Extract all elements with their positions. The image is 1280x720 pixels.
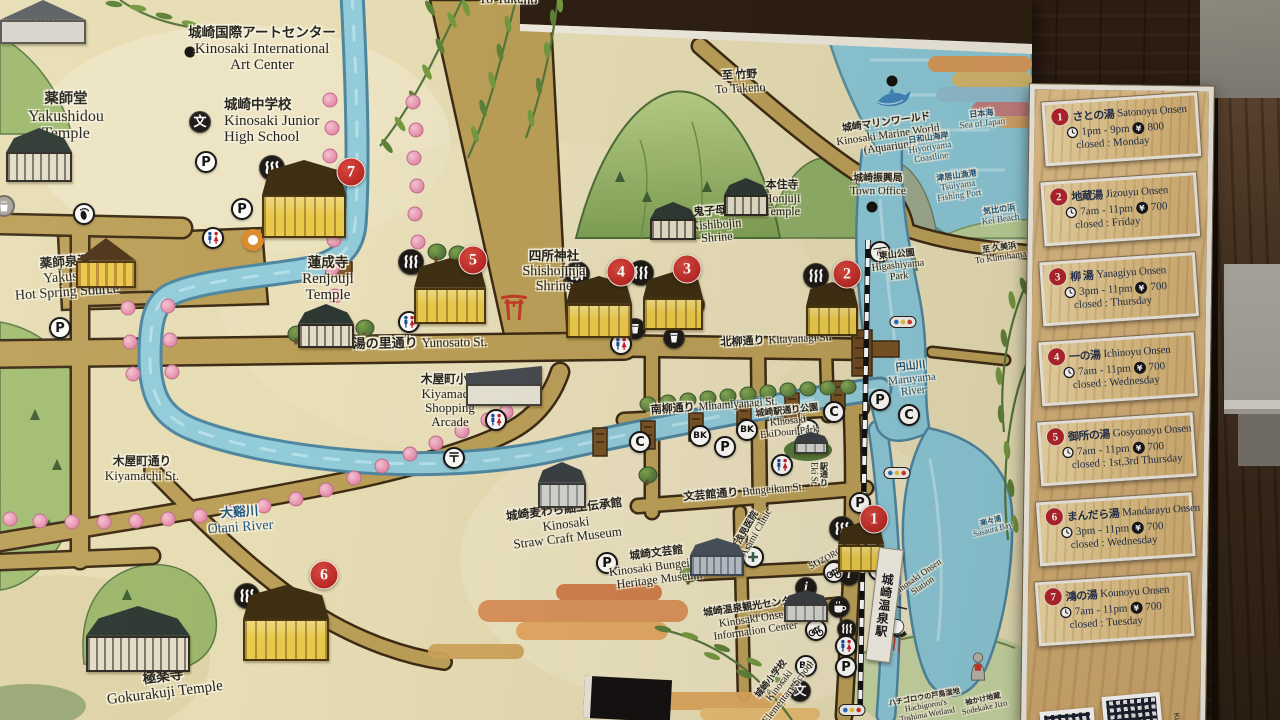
map-label-maruyama-river: 円山川MaruyamaRiver: [886, 360, 937, 400]
map-label-honjuji-temple: 本住寺HonjujiTemple: [764, 180, 801, 218]
wall-shadow-grey: [1238, 414, 1280, 466]
map-label-eki-dori-st: 駅通りEki St.: [809, 462, 828, 487]
map-label-kiyamachi-st: 木屋町通りKiyamachi St.: [105, 456, 179, 483]
onsen-name-jp: 柳 湯: [1070, 266, 1094, 284]
renjouji-building: [298, 304, 354, 348]
map-label-kinosaki-international-art-center: 城崎国際アートセンターKinosaki InternationalArt Cen…: [188, 26, 336, 74]
yakushi-source-building: [76, 238, 136, 288]
map-marker-1: 1: [860, 505, 889, 534]
onsen-legend-panel: 1さとの湯Satonoyu Onsen1pm - 9pm¥800closed :…: [1021, 84, 1214, 720]
qr-caption: Kinosaki: [1172, 712, 1187, 720]
arcade-building: [466, 366, 542, 406]
map-label-hiyoriyama-coastline: 日和山海岸HiyoriyamaCoastline: [907, 131, 954, 165]
onsen-card-5: 5御所の湯Gosyonoyu Onsen7am - 11pm¥700closed…: [1037, 412, 1197, 486]
onsen-name-en: Gosyonoyu Onsen: [1112, 422, 1191, 439]
onsen-card-7: 7鴻の湯Kounoyu Onsen7am - 11pm¥700closed : …: [1035, 572, 1195, 646]
onsen-name-en: Yanagiyu Onsen: [1096, 264, 1166, 281]
onsen-card-1: 1さとの湯Satonoyu Onsen1pm - 9pm¥800closed :…: [1041, 92, 1201, 166]
onsen-building-6: [243, 585, 329, 661]
kinosaki-onsen-map-board-photo: 文PPP〒CBKBKPPCCPPCiiBKP文 1234567 Hall薬師堂Y…: [0, 0, 1280, 720]
map-label-sasaura-bay: 楽々浦Sasaura Bay: [971, 513, 1014, 539]
gokurakuji-building: [86, 606, 190, 672]
onsen-name-en: Jizouyu Onsen: [1105, 184, 1168, 200]
map-label-yunosato-st: 湯の里通りYunosato St.: [353, 335, 488, 352]
info-center-building: [784, 590, 828, 622]
onsen-name-jp: 地蔵湯: [1071, 186, 1103, 204]
map-label-tsuiyama-fishing-port: 津居山漁港TsuiyamaFishing Port: [934, 169, 982, 204]
map-marker-7: 7: [337, 158, 366, 187]
onsen-card-2: 2地蔵湯Jizouyu Onsen7am - 11pm¥700closed : …: [1040, 172, 1200, 246]
map-marker-4: 4: [607, 258, 636, 287]
map-label-otani-river: 大谿川Otani River: [206, 504, 274, 538]
map-label-bungeikan-st: 文芸館通りBungeikan St.: [683, 481, 805, 504]
wall-window-grey: [1224, 264, 1280, 414]
onsen-name-jp: 鴻の湯: [1065, 586, 1097, 604]
qr-code: [1040, 707, 1099, 720]
onsen-card-number: 1: [1050, 107, 1070, 127]
map-marker-2: 2: [833, 260, 862, 289]
onsen-card-number: 2: [1049, 187, 1069, 207]
park-pavilion: [794, 432, 828, 454]
onsen-card-number: 5: [1045, 427, 1065, 447]
onsen-card-number: 4: [1046, 347, 1066, 367]
map-label-sea-of-japan: 日本海Sea of Japan: [958, 108, 1005, 131]
map-label-kei-beach: 気比の浜Kei Beach: [980, 203, 1020, 227]
onsen-building-7: [262, 160, 346, 238]
onsen-name-jp: まんだら湯: [1066, 504, 1119, 523]
map-label-to-takeno-top: To Takeno: [479, 0, 538, 7]
station-sign-text: 城崎温泉駅: [872, 572, 897, 639]
kishibojin-building: [650, 202, 696, 240]
onsen-name-en: Mandarayu Onsen: [1122, 501, 1201, 518]
onsen-card-number: 7: [1043, 587, 1063, 607]
window-sill: [1224, 400, 1280, 409]
map-label-higashiyama-park: 東山公園HigashiyamaPark: [870, 247, 926, 284]
map-label-to-kumihama: 至 久美浜To Kumihama: [973, 241, 1027, 267]
map-label-sodekake-jizo: 袖かけ地蔵Sodekake Jizo: [960, 691, 1008, 717]
onsen-card-6: 6まんだら湯Mandarayu Onsen3pm - 11pm¥700close…: [1036, 492, 1196, 566]
straw-craft-building: [538, 462, 586, 508]
onsen-card-4: 4一の湯Ichinoyu Onsen7am - 11pm¥700closed :…: [1038, 332, 1198, 406]
honjuji-building: [724, 178, 768, 216]
map-label-town-office: 城崎振興局Town Office: [850, 174, 906, 197]
map-label-kinosaki-elementary-school: 城崎小学校KinosakiElementary School: [744, 646, 816, 720]
hall-building: [0, 0, 86, 44]
map-board: 文PPP〒CBKBKPPCCPPCiiBKP文 1234567 Hall薬師堂Y…: [0, 0, 1032, 720]
wall-corner-grey: [1200, 0, 1280, 98]
map-marker-3: 3: [673, 255, 702, 284]
map-label-renjouji-temple: 蓮成寺RenjoujiTemple: [302, 256, 354, 304]
onsen-name-jp: さとの湯: [1072, 105, 1115, 124]
map-marker-6: 6: [310, 561, 339, 590]
onsen-name-jp: 一の湯: [1069, 346, 1101, 364]
legend-box-partial: [583, 676, 672, 720]
bungeikan-building: [690, 538, 744, 576]
onsen-name-en: Satonoyu Onsen: [1117, 102, 1187, 119]
map-label-toshima-wetland: ハチゴロウの戸島湿地Hachigorou'sToshima Wetland: [888, 688, 963, 720]
onsen-building-2: [806, 282, 858, 336]
qr-code: [1102, 692, 1165, 720]
yakushidou-building: [6, 128, 72, 182]
onsen-card-number: 6: [1044, 507, 1064, 527]
map-marker-5: 5: [459, 246, 488, 275]
qr-row: Kinosaki: [1025, 663, 1200, 720]
map-label-to-takeno: 至 竹野To Takeno: [714, 69, 766, 97]
onsen-name-jp: 御所の湯: [1067, 425, 1110, 444]
onsen-name-en: Kounoyu Onsen: [1100, 583, 1170, 600]
onsen-card-number: 3: [1048, 267, 1068, 287]
map-label-kinosaki-junior-high-school: 城崎中学校Kinosaki JuniorHigh School: [224, 98, 319, 146]
onsen-card-3: 3柳 湯Yanagiyu Onsen3pm - 11pm¥700closed :…: [1039, 252, 1199, 326]
onsen-name-en: Ichinoyu Onsen: [1103, 343, 1171, 359]
